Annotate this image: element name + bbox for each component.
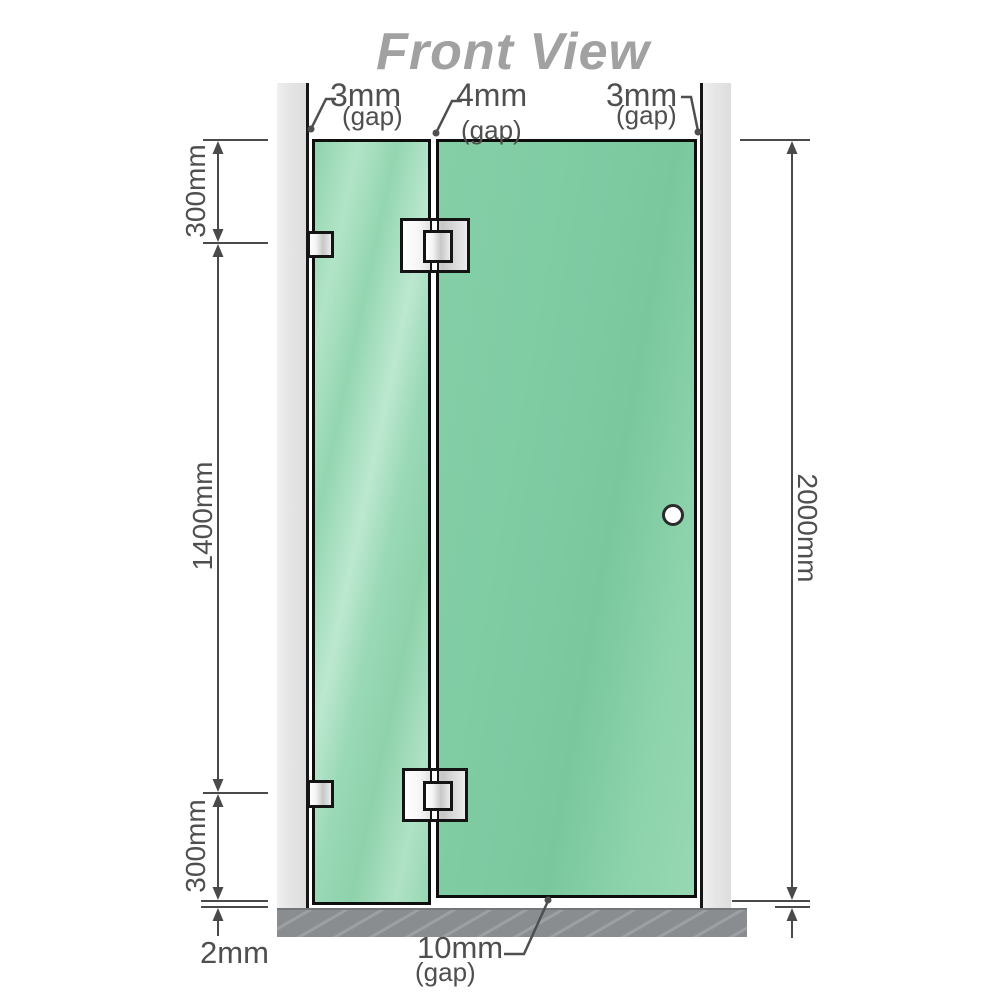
gap-label-bottom-sub: (gap) bbox=[415, 959, 476, 985]
gap-label-left-sub: (gap) bbox=[342, 103, 403, 129]
dim-label-total-2000mm: 2000mm bbox=[793, 474, 821, 583]
dim-label-floor-2mm: 2mm bbox=[200, 937, 269, 968]
top-wall-bracket bbox=[307, 231, 334, 258]
dim-label-top-300mm: 300mm bbox=[182, 144, 210, 237]
top-hinge-knuckle bbox=[423, 230, 453, 263]
left-wall bbox=[277, 83, 306, 908]
gap-label-right-sub: (gap) bbox=[616, 102, 677, 128]
right-wall bbox=[703, 83, 731, 908]
door-handle-knob bbox=[662, 504, 684, 526]
dim-label-middle-1400mm: 1400mm bbox=[189, 462, 217, 571]
gap-label-middle-sub: (gap) bbox=[461, 117, 522, 143]
shower-screen-front-view-diagram: Front View bbox=[0, 0, 1000, 1000]
floor-base bbox=[277, 908, 747, 937]
dim-label-bottom-300mm: 300mm bbox=[182, 799, 210, 892]
diagram-title: Front View bbox=[376, 22, 650, 82]
bottom-hinge-knuckle bbox=[423, 781, 453, 811]
gap-label-middle-value: 4mm bbox=[456, 79, 527, 111]
bottom-wall-bracket bbox=[307, 780, 334, 808]
door-glass-panel bbox=[436, 139, 697, 898]
